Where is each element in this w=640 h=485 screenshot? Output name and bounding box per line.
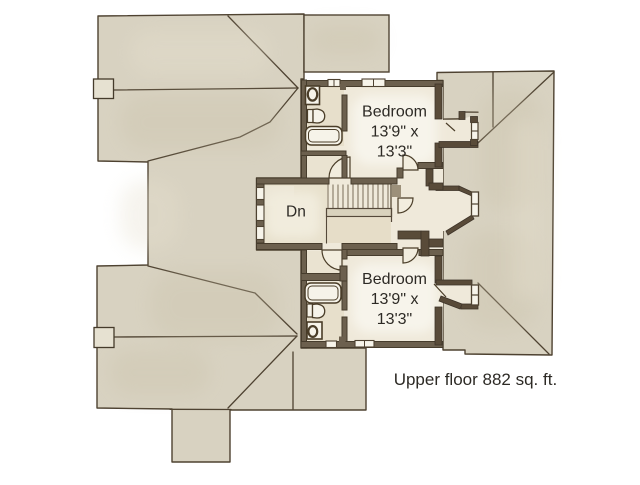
svg-text:13'3": 13'3" [377,144,412,161]
svg-text:Upper floor 882 sq. ft.: Upper floor 882 sq. ft. [394,370,557,389]
svg-text:13'9" x: 13'9" x [371,291,419,308]
svg-text:Bedroom: Bedroom [362,104,427,121]
svg-text:Bedroom: Bedroom [362,271,427,288]
svg-text:13'3": 13'3" [377,311,412,328]
svg-text:Dn: Dn [286,204,306,221]
svg-text:13'9" x: 13'9" x [371,124,419,141]
